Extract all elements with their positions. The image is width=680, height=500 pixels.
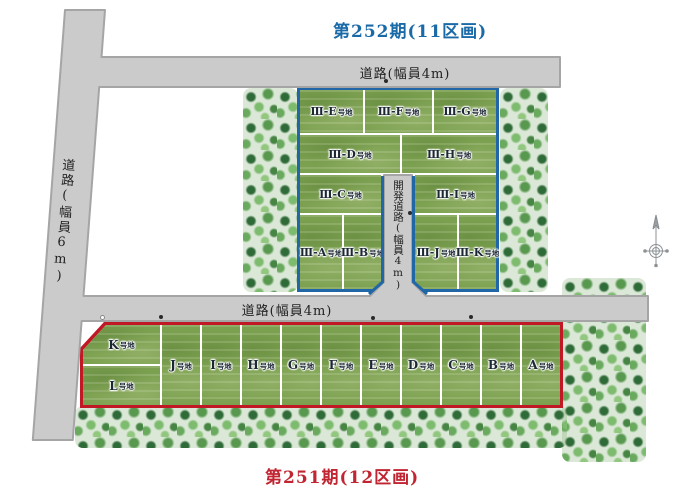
plot-g: G号地 bbox=[282, 325, 320, 405]
marker-dot bbox=[100, 315, 105, 320]
plot-iii-e: Ⅲ-E号地 bbox=[300, 90, 363, 133]
plot-e: E号地 bbox=[362, 325, 400, 405]
plot-iii-g: Ⅲ-G号地 bbox=[434, 90, 496, 133]
plot-iii-c: Ⅲ-C号地 bbox=[300, 175, 381, 213]
compass-rose-icon bbox=[643, 213, 669, 275]
marker-dot bbox=[159, 315, 163, 319]
plot-a: A号地 bbox=[522, 325, 560, 405]
plot-iii-j: Ⅲ-J号地 bbox=[415, 215, 457, 289]
phase-251-title: 第251期(12区画) bbox=[265, 463, 419, 488]
top-road-label: 道路(幅員4m) bbox=[345, 63, 465, 82]
plot-k: K号地 bbox=[83, 325, 160, 364]
plot-iii-i: Ⅲ-I号地 bbox=[415, 175, 496, 213]
plot-iii-f: Ⅲ-F号地 bbox=[365, 90, 432, 133]
marker-dot bbox=[371, 316, 375, 320]
marker-dot bbox=[408, 211, 412, 215]
plot-c: C号地 bbox=[442, 325, 480, 405]
plot-iii-a: Ⅲ-A号地 bbox=[300, 215, 342, 289]
marker-dot bbox=[384, 79, 388, 83]
land-plot-map: Ⅲ-E号地 Ⅲ-F号地 Ⅲ-G号地 Ⅲ-D号地 Ⅲ-H号地 Ⅲ-C号地 Ⅲ-I号… bbox=[0, 0, 680, 500]
plot-h: H号地 bbox=[242, 325, 280, 405]
trees-right-of-phase251 bbox=[562, 278, 646, 462]
trees-right-of-phase252 bbox=[500, 88, 548, 292]
development-road-label: 開発道路(幅員4m) bbox=[391, 180, 406, 292]
plot-iii-d: Ⅲ-D号地 bbox=[300, 135, 400, 173]
plot-j: J号地 bbox=[162, 325, 200, 405]
plot-f: F号地 bbox=[322, 325, 360, 405]
trees-left-of-phase252 bbox=[243, 88, 298, 292]
marker-dot bbox=[469, 315, 473, 319]
plot-i: I号地 bbox=[202, 325, 240, 405]
plot-iii-h: Ⅲ-H号地 bbox=[402, 135, 496, 173]
trees-below-phase251 bbox=[75, 406, 567, 448]
phase-252-title: 第252期(11区画) bbox=[333, 17, 487, 42]
plot-b: B号地 bbox=[482, 325, 520, 405]
plot-l: L号地 bbox=[83, 366, 160, 405]
left-road-label: 道路(幅員6m) bbox=[50, 157, 77, 268]
plot-d: D号地 bbox=[402, 325, 440, 405]
plot-iii-b: Ⅲ-B号地 bbox=[344, 215, 381, 289]
middle-road-label: 道路(幅員4m) bbox=[227, 300, 347, 319]
phase-251-section: K号地 L号地 J号地 I号地 H号地 G号地 F号地 E号地 bbox=[80, 322, 563, 408]
plot-iii-k: Ⅲ-K号地 bbox=[459, 215, 496, 289]
